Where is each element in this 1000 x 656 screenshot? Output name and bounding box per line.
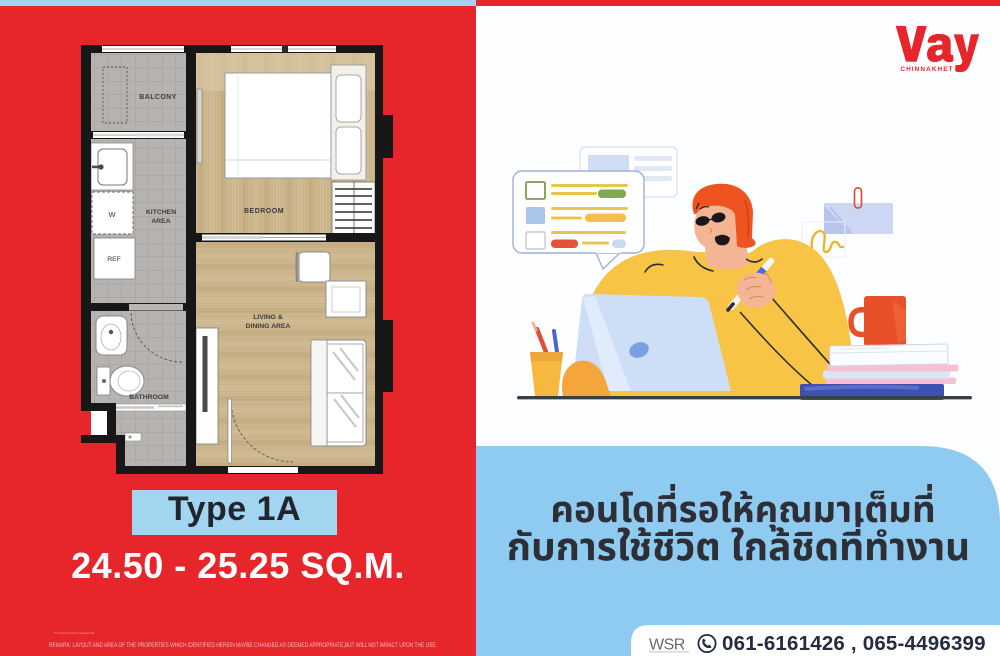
svg-text:WSR: WSR xyxy=(649,637,685,654)
svg-text:CHINNAKHET: CHINNAKHET xyxy=(900,66,953,73)
svg-text:REMARK: LAYOUT AND AREA OF THE: REMARK: LAYOUT AND AREA OF THE PROPERTIE… xyxy=(49,643,437,649)
svg-text:061-6161426 , 065-4496399: 061-6161426 , 065-4496399 xyxy=(722,632,986,655)
